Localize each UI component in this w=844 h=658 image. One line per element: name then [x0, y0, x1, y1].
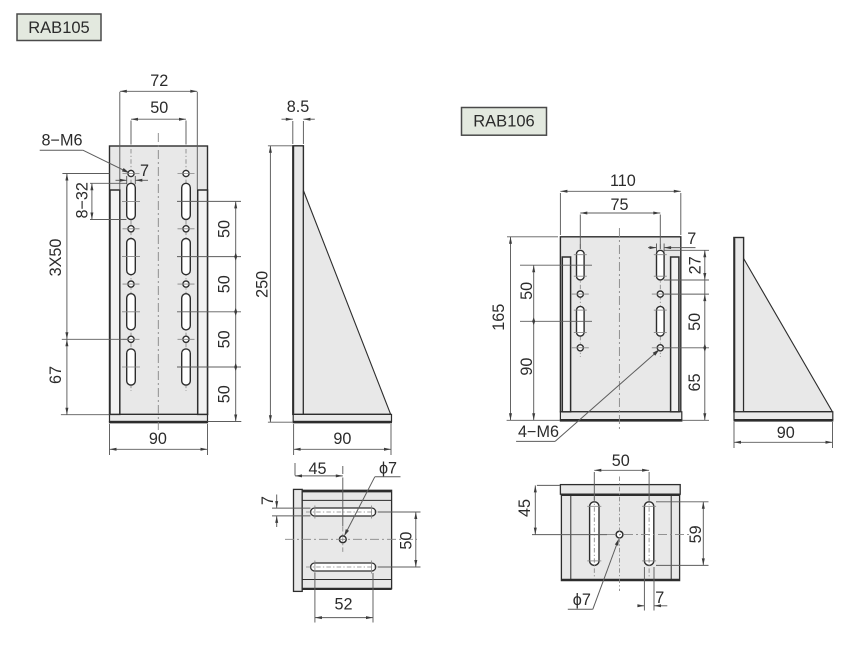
svg-text:50: 50 [215, 275, 233, 293]
svg-text:4−M6: 4−M6 [518, 423, 559, 441]
svg-text:45: 45 [516, 499, 534, 517]
svg-text:50: 50 [215, 330, 233, 348]
svg-text:50: 50 [398, 532, 416, 550]
svg-text:110: 110 [610, 172, 636, 190]
svg-text:50: 50 [215, 220, 233, 238]
svg-text:27: 27 [686, 256, 704, 274]
svg-text:50: 50 [518, 282, 536, 300]
svg-text:72: 72 [150, 72, 168, 90]
svg-text:90: 90 [333, 430, 351, 448]
svg-text:7: 7 [655, 589, 664, 607]
svg-text:50: 50 [612, 452, 630, 470]
svg-text:50: 50 [215, 385, 233, 403]
svg-text:45: 45 [308, 460, 326, 478]
svg-text:50: 50 [686, 313, 704, 331]
svg-text:7: 7 [259, 496, 277, 505]
svg-text:ϕ7: ϕ7 [573, 591, 591, 609]
svg-text:67: 67 [47, 366, 65, 384]
svg-text:8.5: 8.5 [287, 98, 310, 116]
svg-text:7: 7 [140, 162, 149, 180]
svg-text:250: 250 [253, 271, 271, 298]
svg-text:3X50: 3X50 [47, 239, 65, 277]
svg-text:52: 52 [334, 595, 352, 613]
svg-text:RAB105: RAB105 [28, 19, 89, 37]
svg-text:50: 50 [150, 99, 168, 117]
svg-text:75: 75 [610, 196, 628, 214]
svg-text:RAB106: RAB106 [473, 113, 534, 131]
svg-text:8−32: 8−32 [73, 182, 91, 218]
svg-text:65: 65 [686, 373, 704, 391]
svg-text:8−M6: 8−M6 [42, 132, 83, 150]
svg-text:90: 90 [777, 424, 795, 442]
svg-text:ϕ7: ϕ7 [379, 459, 397, 477]
svg-text:90: 90 [149, 430, 167, 448]
svg-text:59: 59 [687, 525, 705, 543]
svg-text:90: 90 [518, 358, 536, 376]
svg-text:165: 165 [490, 304, 508, 331]
svg-text:7: 7 [687, 230, 696, 248]
